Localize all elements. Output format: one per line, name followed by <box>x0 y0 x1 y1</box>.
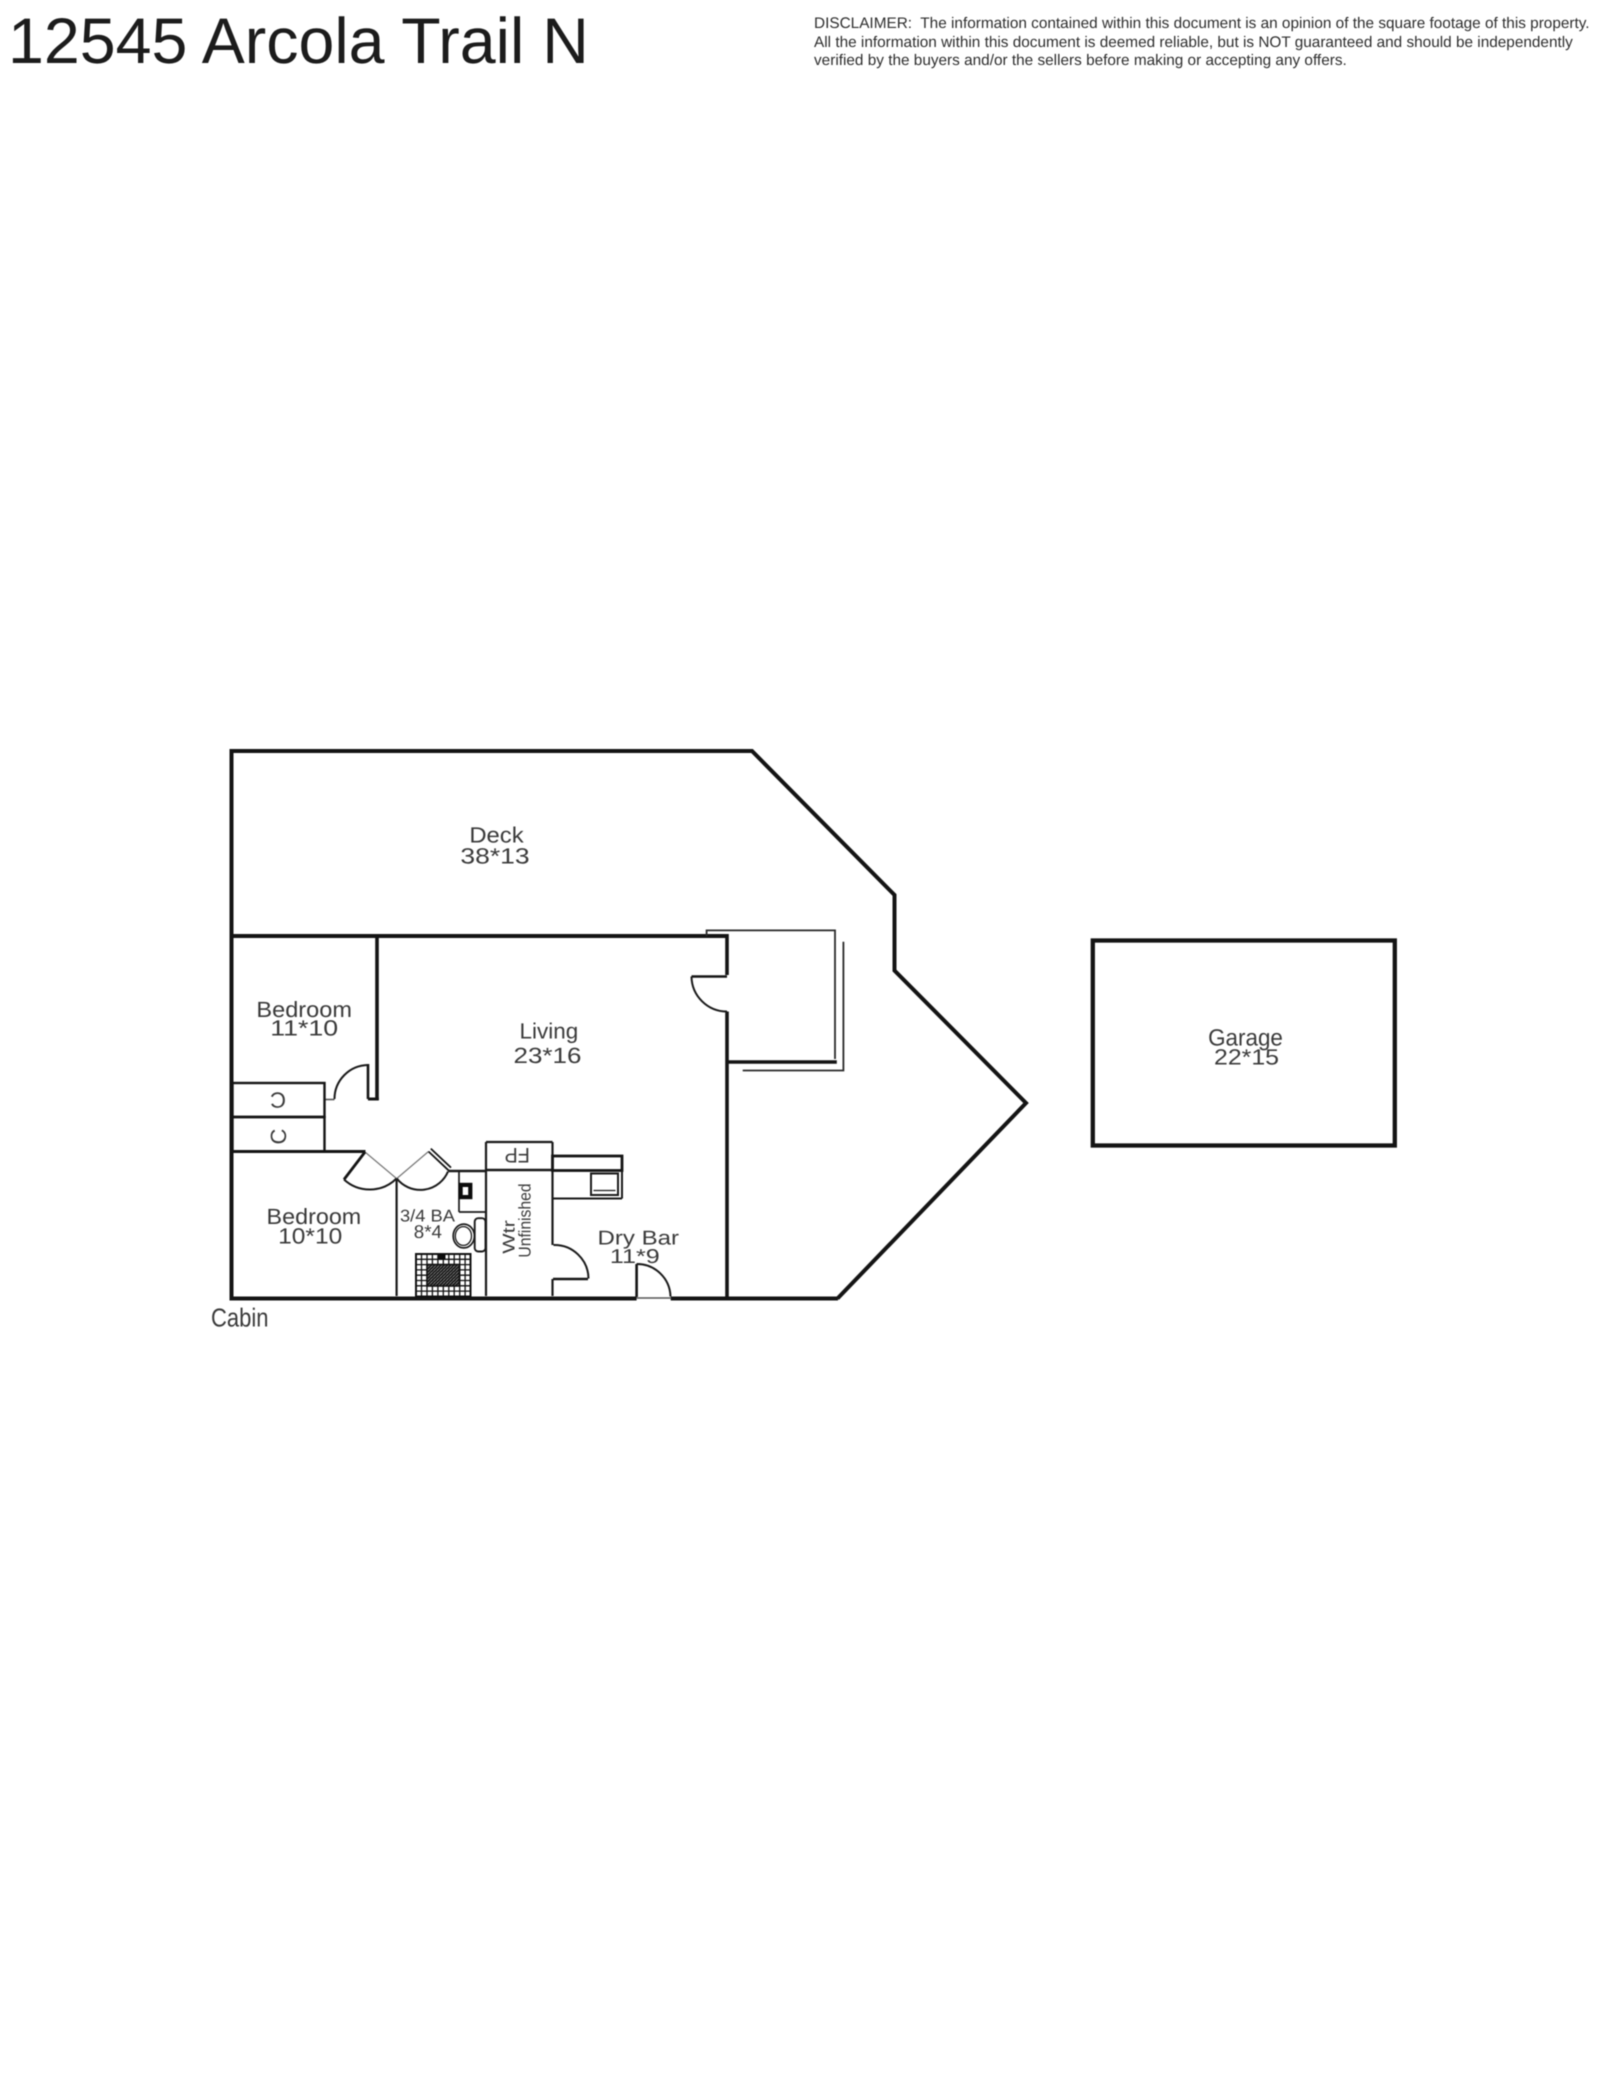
svg-text:C: C <box>266 1128 291 1144</box>
svg-text:22*15: 22*15 <box>1214 1045 1279 1070</box>
svg-text:10*10: 10*10 <box>278 1223 342 1248</box>
svg-text:8*4: 8*4 <box>414 1221 442 1242</box>
svg-text:FP: FP <box>505 1143 530 1166</box>
svg-text:C: C <box>270 1088 286 1113</box>
svg-text:Cabin: Cabin <box>211 1303 269 1333</box>
svg-text:23*16: 23*16 <box>514 1043 582 1068</box>
svg-text:Unfinished: Unfinished <box>515 1183 534 1257</box>
svg-text:Living: Living <box>520 1019 579 1044</box>
svg-text:38*13: 38*13 <box>460 844 529 869</box>
svg-text:11*10: 11*10 <box>270 1016 338 1041</box>
svg-text:11*9: 11*9 <box>610 1246 660 1268</box>
